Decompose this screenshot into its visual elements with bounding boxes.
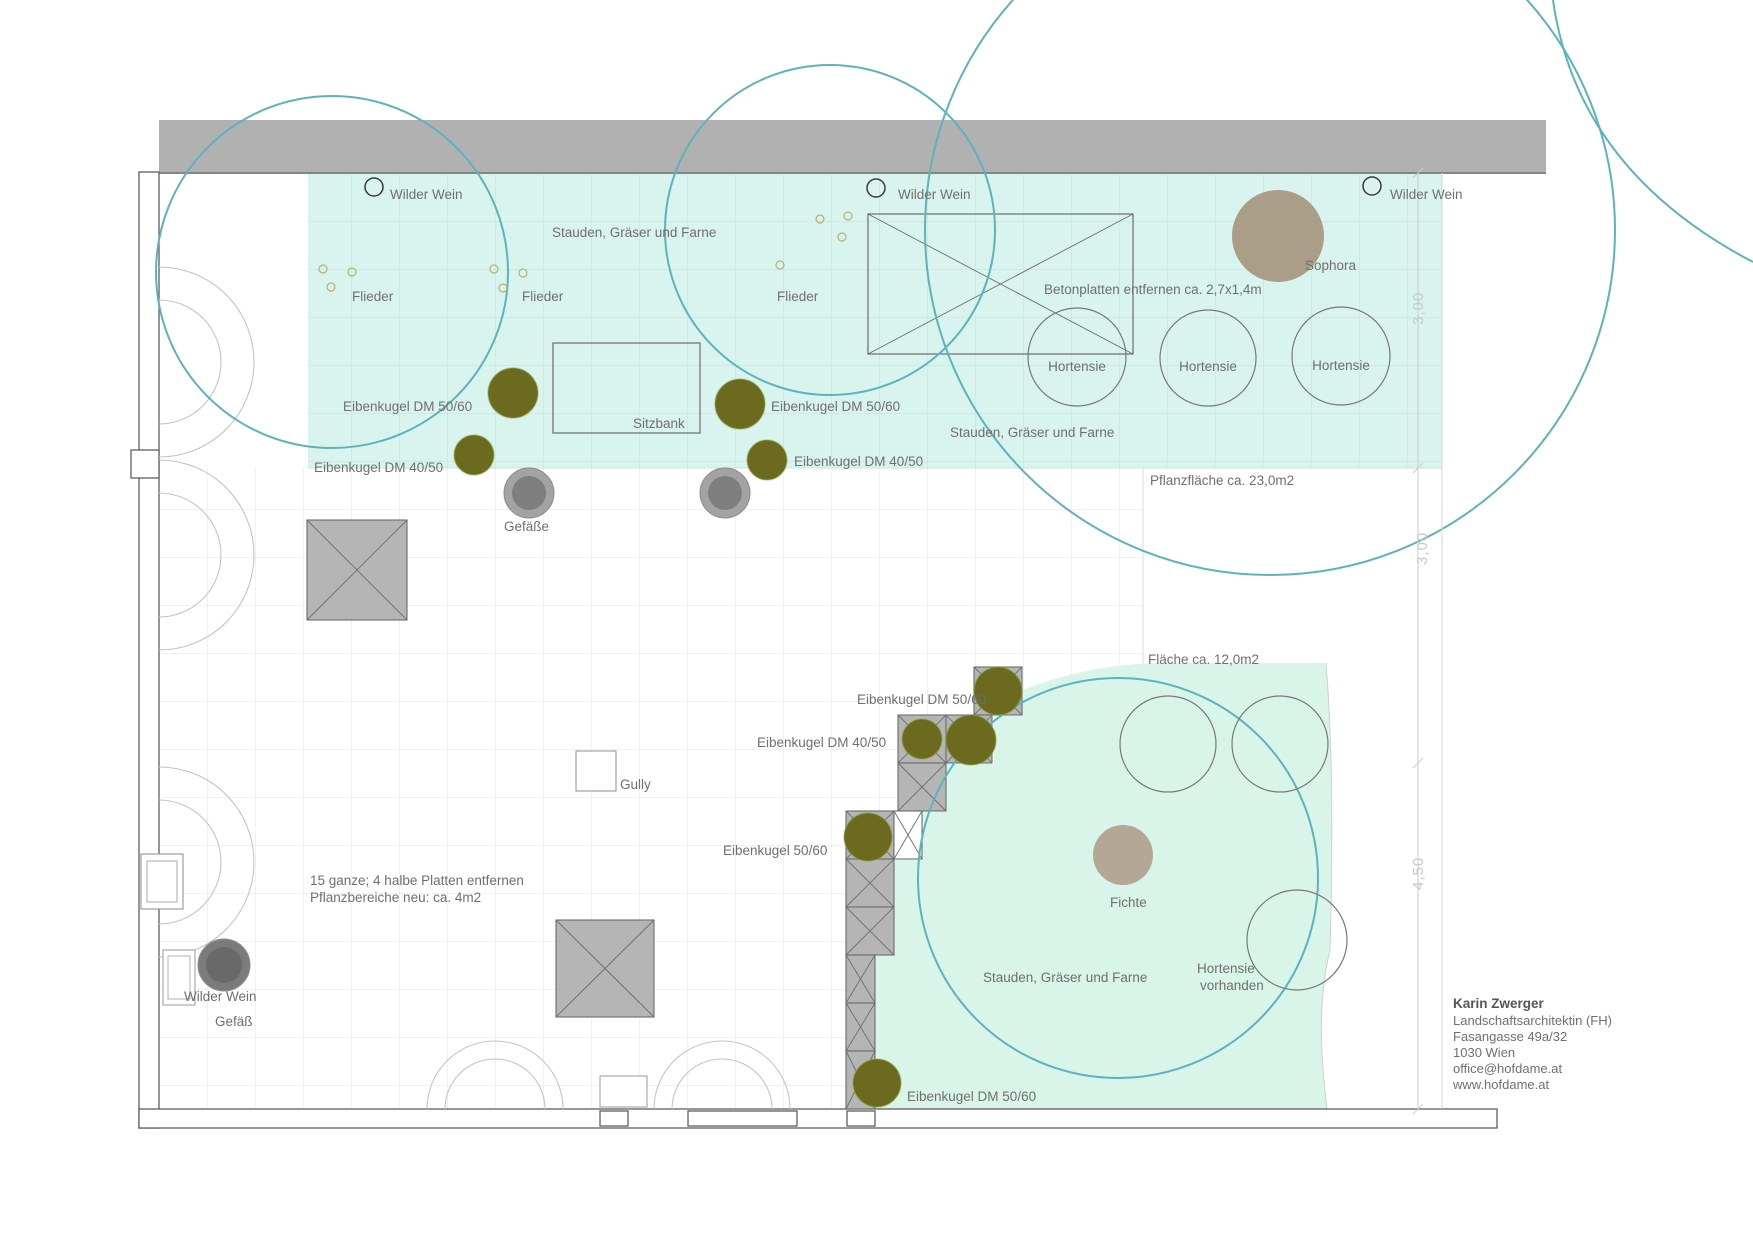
label-fichte: Fichte xyxy=(1110,895,1147,910)
label-wilder-wein: Wilder Wein xyxy=(1390,187,1463,202)
label-stauden: Stauden, Gräser und Farne xyxy=(552,225,716,240)
planter-pot xyxy=(700,468,750,518)
label-eibenkugel-4050: Eibenkugel DM 40/50 xyxy=(794,454,923,469)
fichte-tree xyxy=(1093,825,1153,885)
label-hortensie: Hortensie xyxy=(1048,359,1106,374)
label-platten-note-1: 15 ganze; 4 halbe Platten entfernen xyxy=(310,873,524,888)
label-hortensie-vorhanden-1: Hortensie xyxy=(1197,961,1255,976)
credits-name: Karin Zwerger xyxy=(1453,996,1545,1011)
door-mark xyxy=(688,1111,797,1126)
label-eibenkugel-5060: Eibenkugel DM 50/60 xyxy=(771,399,900,414)
label-eibenkugel-4050: Eibenkugel DM 40/50 xyxy=(757,735,886,750)
label-betonplatten-note: Betonplatten entfernen ca. 2,7x1,4m xyxy=(1044,282,1262,297)
door-mark xyxy=(600,1111,628,1126)
label-wilder-wein: Wilder Wein xyxy=(184,989,257,1004)
wall-pillar xyxy=(131,450,159,478)
credits-city: 1030 Wien xyxy=(1453,1045,1515,1060)
label-hortensie: Hortensie xyxy=(1312,358,1370,373)
planter-pot-wilder-wein xyxy=(198,939,250,991)
label-hortensie: Hortensie xyxy=(1179,359,1237,374)
building-wall-top xyxy=(159,120,1546,173)
label-flieder: Flieder xyxy=(352,289,394,304)
courtyard-wall-left xyxy=(139,172,159,1128)
dimension-3-00-middle: 3,00 xyxy=(1414,532,1431,565)
label-pflanzflaeche-note: Pflanzfläche ca. 23,0m2 xyxy=(1150,473,1294,488)
garden-plan-canvas: Wilder Wein Wilder Wein Wilder Wein Stau… xyxy=(0,0,1753,1240)
label-hortensie-vorhanden-2: vorhanden xyxy=(1200,978,1264,993)
label-gefaess: Gefäß xyxy=(215,1014,253,1029)
label-eibenkugel-5060: Eibenkugel DM 50/60 xyxy=(857,692,986,707)
credits-street: Fasangasse 49a/32 xyxy=(1453,1029,1567,1044)
credits-title: Landschaftsarchitektin (FH) xyxy=(1453,1013,1612,1028)
label-eibenkugel-4050: Eibenkugel DM 40/50 xyxy=(314,460,443,475)
credits-block: Karin Zwerger Landschaftsarchitektin (FH… xyxy=(1452,996,1612,1092)
platten-square-large xyxy=(556,920,654,1017)
platten-square-large xyxy=(307,520,407,620)
dimension-3-00-top: 3,00 xyxy=(1410,292,1427,325)
credits-email: office@hofdame.at xyxy=(1453,1061,1562,1076)
dimension-4-50-bottom: 4,50 xyxy=(1410,857,1427,890)
label-sitzbank: Sitzbank xyxy=(633,416,685,431)
planter-pot xyxy=(504,468,554,518)
gully-drain xyxy=(576,751,616,791)
label-flieder: Flieder xyxy=(522,289,564,304)
credits-web: www.hofdame.at xyxy=(1452,1077,1549,1092)
label-platten-note-2: Pflanzbereiche neu: ca. 4m2 xyxy=(310,890,481,905)
label-sophora: Sophora xyxy=(1305,258,1357,273)
label-eibenkugel-5060: Eibenkugel DM 50/60 xyxy=(907,1089,1036,1104)
door-mark xyxy=(847,1111,875,1126)
label-stauden: Stauden, Gräser und Farne xyxy=(983,970,1147,985)
label-flaeche-note: Fläche ca. 12,0m2 xyxy=(1148,652,1259,667)
label-eibenkugel-5060: Eibenkugel DM 50/60 xyxy=(343,399,472,414)
label-gefaesse: Gefäße xyxy=(504,519,549,534)
label-flieder: Flieder xyxy=(777,289,819,304)
courtyard-wall-bottom xyxy=(139,1109,1497,1128)
label-eibenkugel-5060-plain: Eibenkugel 50/60 xyxy=(723,843,827,858)
label-gully: Gully xyxy=(620,777,651,792)
entrance-step xyxy=(600,1076,647,1107)
label-wilder-wein: Wilder Wein xyxy=(390,187,463,202)
label-stauden: Stauden, Gräser und Farne xyxy=(950,425,1114,440)
label-wilder-wein: Wilder Wein xyxy=(898,187,971,202)
